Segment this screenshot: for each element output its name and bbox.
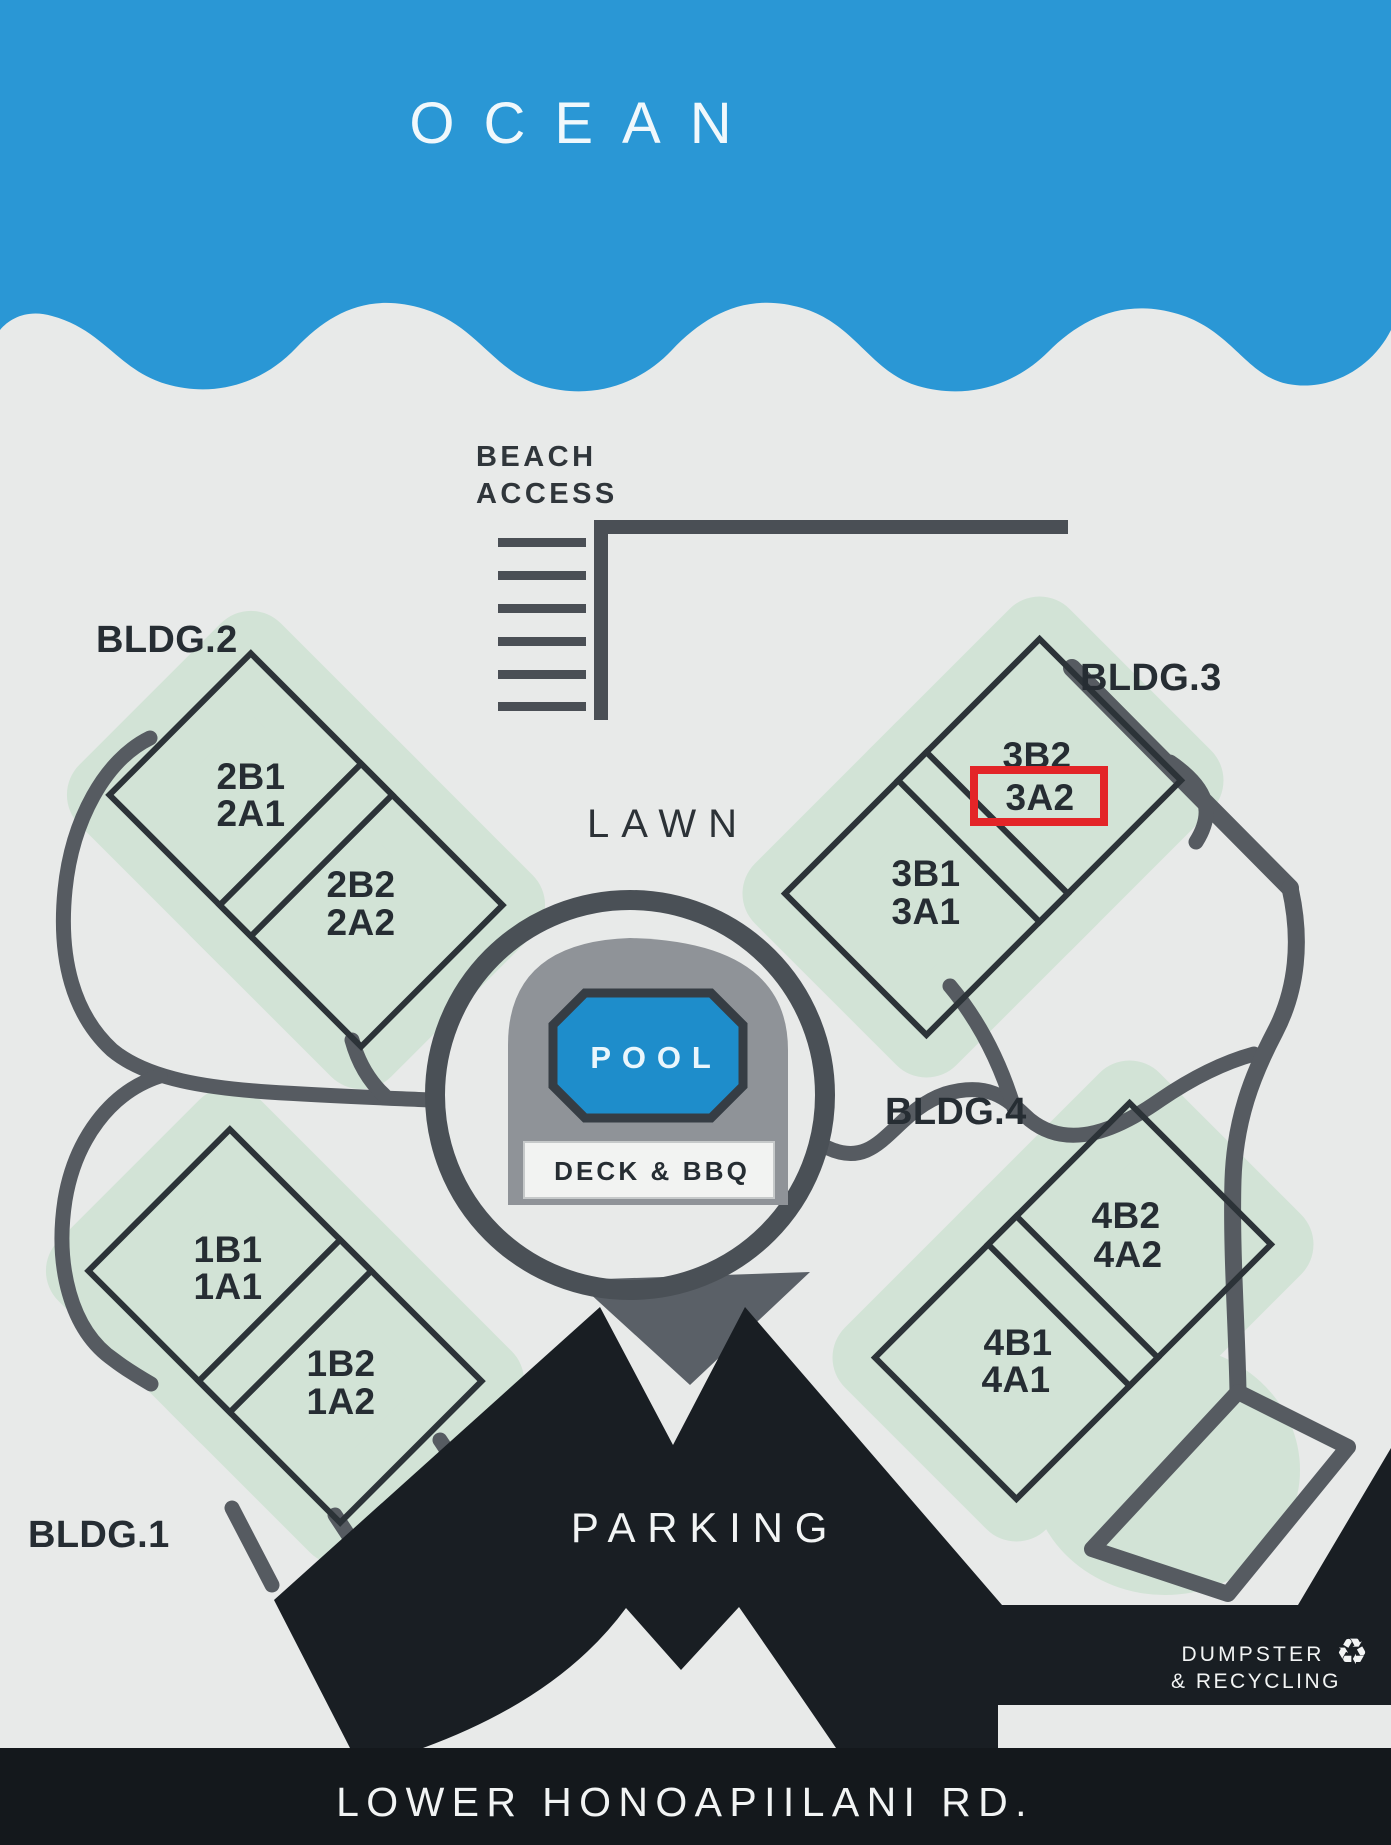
recycle-icon: ♻ [1336,1631,1368,1672]
building-2-label: BLDG.2 [96,619,238,661]
parking-label: PARKING [571,1504,839,1551]
building-1-unit-1a2: 1A2 [307,1381,376,1422]
dumpster-label-line1: DUMPSTER [1181,1643,1324,1666]
building-3-label: BLDG.3 [1080,657,1222,699]
building-3-unit-3a2: 3A2 [1006,777,1075,818]
building-2-unit-2b2: 2B2 [327,864,396,905]
deck-bbq-label: DECK & BBQ [554,1156,750,1186]
building-4-unit-4a1: 4A1 [982,1359,1051,1400]
building-3-unit-3b1: 3B1 [892,853,961,894]
dumpster-label-line2: & RECYCLING [1171,1670,1341,1693]
pool-label: POOL [590,1040,721,1075]
building-1-label: BLDG.1 [28,1514,170,1556]
building-4-unit-4a2: 4A2 [1094,1234,1163,1275]
building-4-label: BLDG.4 [885,1091,1027,1133]
building-4-unit-4b2: 4B2 [1092,1195,1161,1236]
building-1-unit-1b1: 1B1 [194,1229,263,1270]
map-canvas: OCEAN [0,0,1391,1845]
building-1-unit-1b2: 1B2 [307,1343,376,1384]
beach-access-label-line1: BEACH [476,441,597,473]
lawn-label: LAWN [587,802,749,846]
building-2-unit-2a2: 2A2 [327,902,396,943]
building-1-unit-1a1: 1A1 [194,1266,263,1307]
building-4-unit-4b1: 4B1 [984,1322,1053,1363]
building-2-unit-2a1: 2A1 [217,793,286,834]
building-3-unit-3a1: 3A1 [892,891,961,932]
building-2-unit-2b1: 2B1 [217,756,286,797]
resort-map-sign: OCEAN [0,0,1391,1845]
ocean-label: OCEAN [409,91,760,156]
road-label: LOWER HONOAPIILANI RD. [336,1779,1034,1825]
beach-access-label-line2: ACCESS [476,478,618,510]
